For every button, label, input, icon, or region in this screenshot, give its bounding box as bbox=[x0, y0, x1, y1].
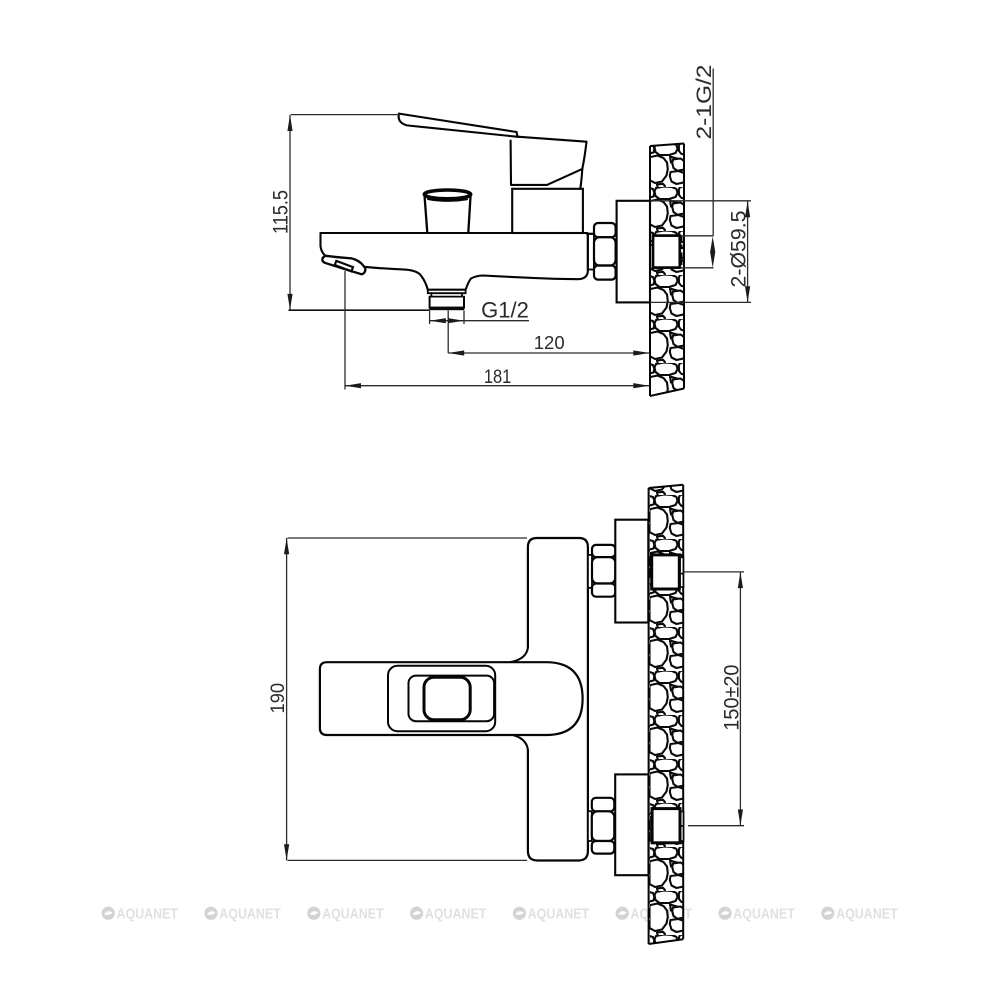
svg-text:2-Ø59.5: 2-Ø59.5 bbox=[728, 211, 751, 288]
svg-text:115.5: 115.5 bbox=[269, 190, 292, 234]
svg-text:AQUANET: AQUANET bbox=[836, 906, 898, 923]
svg-text:AQUANET: AQUANET bbox=[322, 906, 384, 923]
svg-text:G1/2: G1/2 bbox=[481, 297, 529, 322]
svg-text:181: 181 bbox=[484, 367, 512, 388]
svg-text:120: 120 bbox=[534, 332, 565, 353]
svg-text:AQUANET: AQUANET bbox=[733, 906, 795, 923]
svg-text:150±20: 150±20 bbox=[720, 665, 743, 731]
svg-text:AQUANET: AQUANET bbox=[117, 906, 179, 923]
svg-text:AQUANET: AQUANET bbox=[219, 906, 280, 923]
svg-text:2-1G/2: 2-1G/2 bbox=[693, 65, 716, 140]
svg-text:190: 190 bbox=[268, 683, 289, 714]
svg-text:AQUANET: AQUANET bbox=[528, 906, 590, 923]
svg-text:AQUANET: AQUANET bbox=[425, 906, 487, 923]
